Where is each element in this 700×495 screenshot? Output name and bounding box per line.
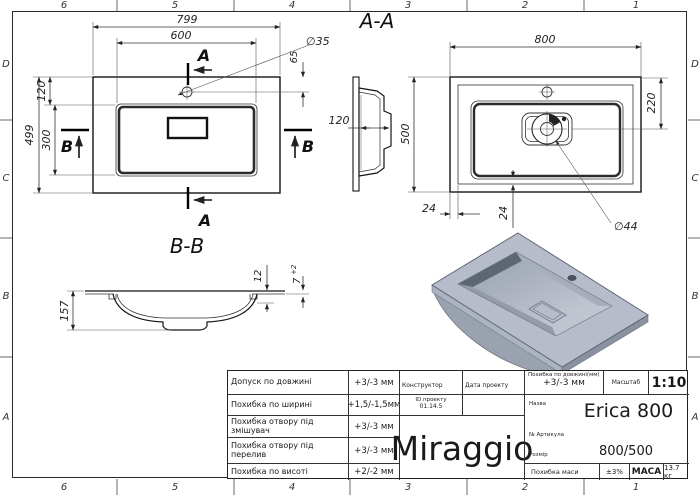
dim-aa-800: 800 bbox=[535, 33, 556, 46]
dim-plan-600: 600 bbox=[171, 29, 192, 42]
section-bb-view: B-B 157 12 7 +2 bbox=[58, 234, 309, 330]
tolerance-label: Допуск по довжині bbox=[228, 371, 349, 394]
tolerance-label: Похибка по ширині bbox=[228, 394, 349, 415]
section-mark-a-top: A bbox=[188, 46, 212, 85]
svg-text:B: B bbox=[302, 137, 314, 156]
constructor-label: Конструктор bbox=[402, 382, 443, 389]
dim-aa-120: 120 bbox=[329, 114, 350, 127]
plan-view: 799 600 499 120 300 65 ∅35 bbox=[23, 13, 330, 230]
dim-bb-12: 12 bbox=[253, 270, 264, 283]
dim-aa-500: 500 bbox=[399, 124, 412, 145]
miraggio-logo: Miraggio bbox=[399, 415, 524, 480]
svg-text:A: A bbox=[196, 46, 210, 65]
aa-drain-detail bbox=[522, 111, 572, 147]
name-label: Назва bbox=[529, 401, 546, 407]
section-mark-b-left: B bbox=[61, 130, 89, 158]
product-name: Erica 800 bbox=[571, 400, 686, 422]
aa-faucet-hole bbox=[539, 84, 555, 100]
empty-cell bbox=[462, 394, 524, 415]
length-tolerance-label: Похибка по довжині(мм) bbox=[525, 371, 603, 378]
scale-label: Масштаб bbox=[612, 379, 641, 386]
section-aa-view: A-A 120 bbox=[329, 9, 669, 233]
render-3d bbox=[432, 233, 648, 377]
tolerance-label: Похибка по висоті bbox=[228, 463, 349, 480]
svg-text:A: A bbox=[197, 211, 211, 230]
project-id-value: 01.14.5 bbox=[400, 403, 462, 410]
faucet-hole bbox=[179, 84, 195, 100]
svg-text:B: B bbox=[61, 137, 73, 156]
scale-value: 1:10 bbox=[648, 371, 689, 394]
dim-aa-drain-dia: ∅44 bbox=[614, 220, 638, 233]
product-size: 800/500 bbox=[571, 444, 681, 459]
mass-value: 13.7 кг bbox=[663, 463, 689, 480]
project-date-label: Дата проекту bbox=[465, 382, 508, 389]
aa-side-profile bbox=[353, 77, 391, 191]
section-bb-title: B-B bbox=[170, 234, 204, 258]
mass-tolerance-value: ±3% bbox=[599, 463, 629, 480]
tolerance-value: +1,5/-1,5мм bbox=[349, 394, 399, 415]
overflow-hole bbox=[168, 118, 207, 138]
drawing-sheet: 6 5 4 3 2 1 6 5 4 3 2 1 D C B A D C B A bbox=[0, 0, 700, 495]
dim-plan-120: 120 bbox=[35, 81, 48, 102]
dim-aa-24-bottom: 24 bbox=[497, 206, 510, 220]
section-mark-b-right: B bbox=[284, 130, 314, 158]
tolerance-label: Похибка отвору під змішувач bbox=[228, 415, 349, 437]
dim-bb-7-tolerance: +2 bbox=[290, 264, 298, 275]
dim-bb-7: 7 bbox=[292, 277, 303, 284]
dim-aa-220: 220 bbox=[645, 93, 658, 114]
dim-plan-799: 799 bbox=[177, 13, 198, 26]
section-aa-title: A-A bbox=[358, 9, 395, 33]
mass-tolerance-label: Похибка маси bbox=[531, 468, 579, 476]
dim-plan-hole-dia: ∅35 bbox=[306, 35, 330, 48]
dim-bb-157: 157 bbox=[58, 301, 71, 322]
article-label: № Артикула bbox=[529, 432, 564, 438]
dim-plan-300: 300 bbox=[40, 130, 53, 151]
tolerance-value: +3/-3 мм bbox=[349, 371, 399, 394]
title-block: Допуск по довжині +3/-3 мм Похибка по ши… bbox=[227, 370, 688, 479]
dim-plan-65: 65 bbox=[289, 51, 300, 64]
render-faucet-hole bbox=[568, 275, 577, 281]
dim-plan-499: 499 bbox=[23, 125, 36, 146]
length-tolerance-value: +3/-3 мм bbox=[525, 378, 603, 388]
tolerance-label: Похибка отвору під перелив bbox=[228, 437, 349, 463]
mass-label: МАСА bbox=[629, 463, 663, 480]
dim-aa-24-left: 24 bbox=[422, 202, 436, 215]
size-label: Розмір bbox=[529, 452, 548, 458]
